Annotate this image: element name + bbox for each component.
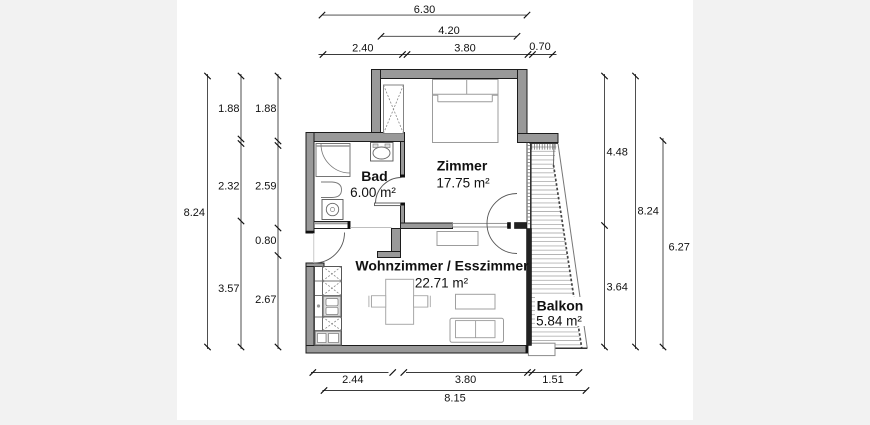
svg-text:1.88: 1.88	[218, 103, 239, 115]
svg-text:8.24: 8.24	[638, 206, 659, 218]
svg-text:1.88: 1.88	[255, 103, 276, 115]
svg-text:Balkon: Balkon	[537, 298, 584, 314]
svg-text:3.80: 3.80	[454, 43, 475, 55]
svg-text:6.00 m²: 6.00 m²	[350, 185, 396, 200]
svg-text:3.57: 3.57	[218, 283, 239, 295]
svg-text:3.64: 3.64	[607, 282, 628, 294]
svg-text:2.59: 2.59	[255, 181, 276, 193]
svg-text:1.51: 1.51	[542, 374, 563, 386]
svg-text:22.71 m²: 22.71 m²	[415, 276, 469, 291]
svg-text:5.84 m²: 5.84 m²	[536, 314, 582, 329]
svg-text:17.75 m²: 17.75 m²	[436, 176, 490, 191]
svg-text:6.30: 6.30	[414, 4, 435, 16]
svg-text:8.24: 8.24	[184, 207, 205, 219]
svg-text:Wohnzimmer / Esszimmer: Wohnzimmer / Esszimmer	[355, 258, 529, 274]
svg-text:0.80: 0.80	[255, 235, 276, 247]
svg-text:2.32: 2.32	[218, 181, 239, 193]
svg-text:2.40: 2.40	[352, 43, 373, 55]
svg-text:Zimmer: Zimmer	[437, 158, 488, 174]
svg-text:Bad: Bad	[361, 168, 387, 184]
svg-text:0.70: 0.70	[529, 41, 550, 53]
svg-text:3.80: 3.80	[455, 374, 476, 386]
svg-text:4.48: 4.48	[607, 147, 628, 159]
svg-text:2.44: 2.44	[342, 374, 363, 386]
svg-text:6.27: 6.27	[669, 242, 690, 254]
svg-text:8.15: 8.15	[444, 393, 465, 405]
svg-text:4.20: 4.20	[438, 25, 459, 37]
svg-text:2.67: 2.67	[255, 294, 276, 306]
